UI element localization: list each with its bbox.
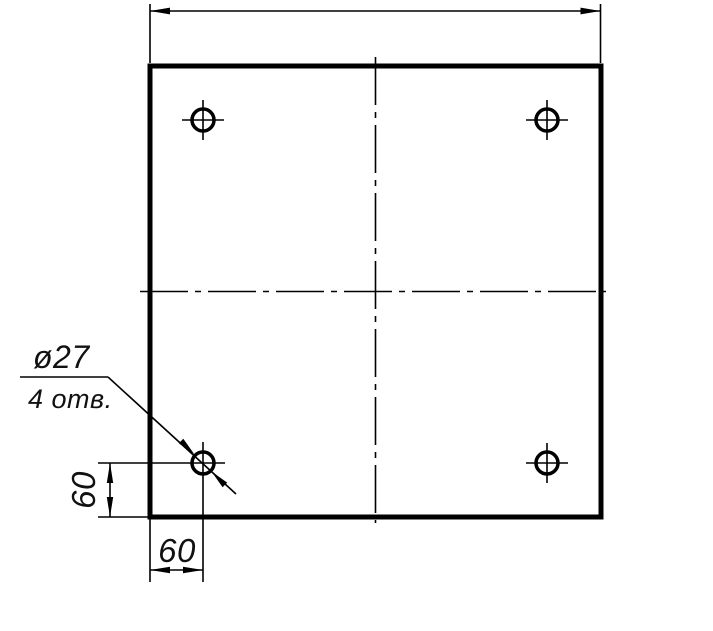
hole-diameter-label: ø27	[33, 339, 90, 375]
arrowhead-left	[150, 8, 170, 15]
arrowhead-upper	[179, 439, 195, 455]
arrowhead-top	[107, 463, 113, 483]
horizontal-offset-value: 60	[158, 532, 196, 569]
top-width-dimension	[150, 4, 601, 63]
vertical-offset-dimension: 60	[65, 463, 148, 517]
vertical-offset-value: 60	[65, 471, 102, 509]
hole-bottom-right	[526, 443, 568, 483]
arrowhead-right	[581, 8, 601, 15]
arrowhead-lower	[212, 472, 228, 488]
hole-top-right	[526, 100, 568, 140]
hole-top-left	[182, 100, 224, 140]
arrowhead-bottom	[107, 497, 113, 517]
drawing-sheet: ø27 4 отв. 60 60	[0, 0, 713, 631]
hole-count-label: 4 отв.	[28, 384, 113, 414]
plate-drawing: ø27 4 отв. 60 60	[0, 0, 713, 631]
horizontal-offset-dimension: 60	[150, 519, 203, 582]
